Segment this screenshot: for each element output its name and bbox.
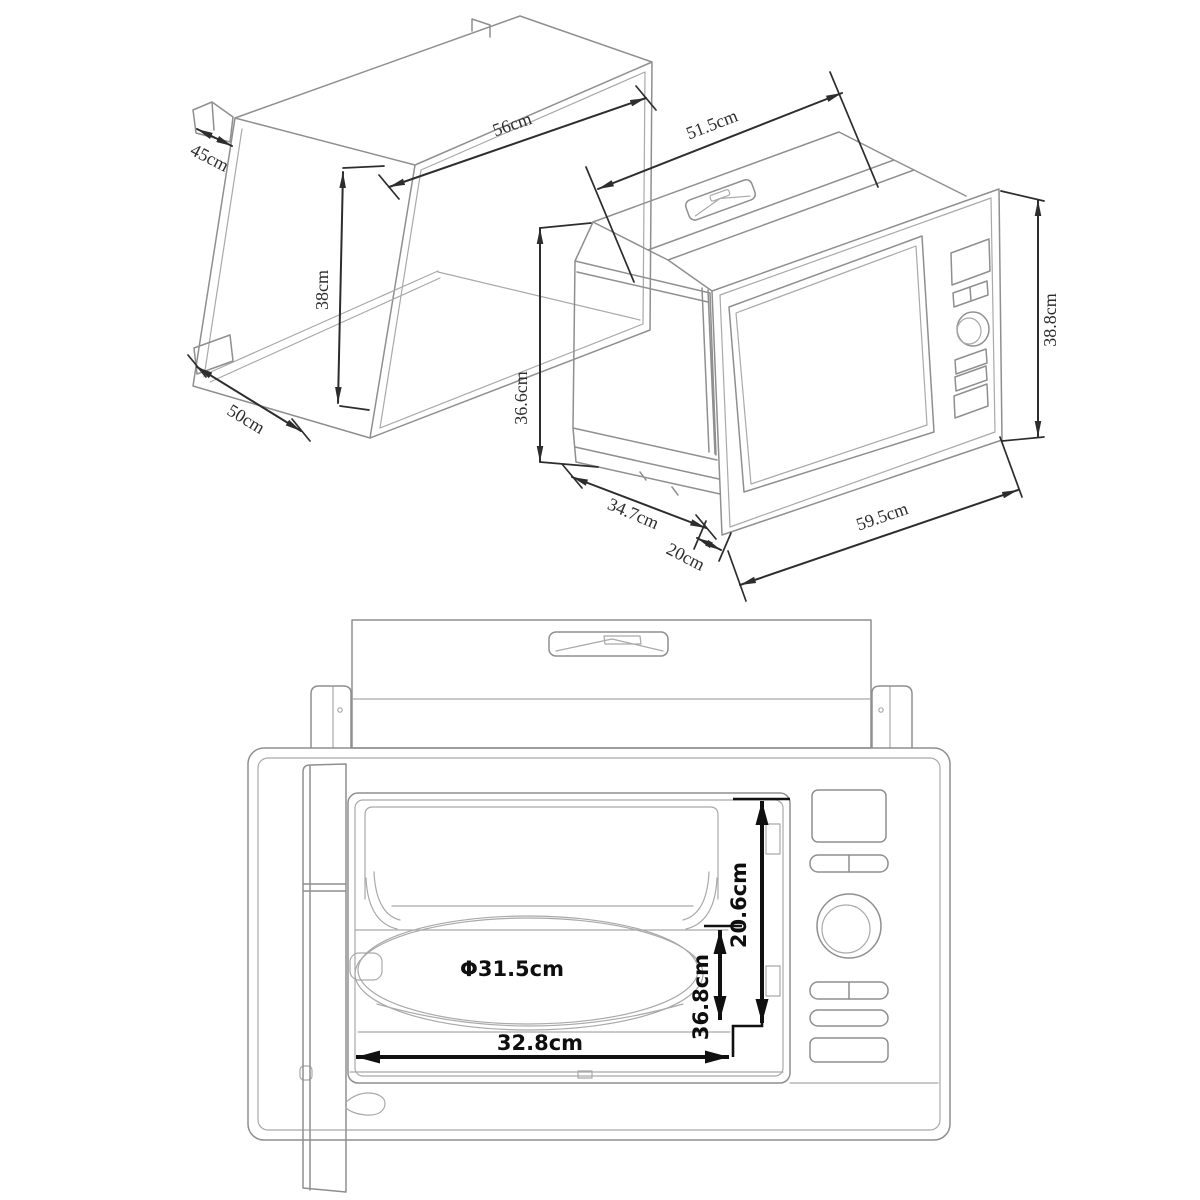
cabinet-isometric-view: 45cm 56cm 38cm 50cm <box>187 16 656 441</box>
microwave-isometric-view: 51.5cm 36.6cm 34.7cm 20cm 59.5cm 38.8cm <box>511 72 1060 601</box>
dim-label-cabinet-width: 56cm <box>490 108 534 140</box>
dim-microwave-clearance: 20cm <box>663 521 731 575</box>
button-row-2 <box>810 982 888 999</box>
button-row-1 <box>810 855 888 872</box>
dim-label-inner-height: 36.8cm <box>689 954 713 1040</box>
front-control-panel <box>810 790 888 1062</box>
dim-label-cavity-width: 32.8cm <box>497 1031 583 1055</box>
dim-label-microwave-frame-height: 38.8cm <box>1040 293 1060 347</box>
dim-cavity-width: 32.8cm <box>356 1031 729 1057</box>
control-knob-inner <box>822 905 870 953</box>
front-body-above-frame <box>311 620 912 748</box>
front-top-vent <box>549 632 668 656</box>
control-knob <box>817 894 881 958</box>
cabinet-outline <box>193 16 652 438</box>
oven-cavity <box>350 807 938 1083</box>
dim-label-cavity-height: 20.6cm <box>727 862 751 948</box>
dim-cabinet-top-depth: 45cm <box>187 129 232 176</box>
microwave-front-view: 20.6cm 36.8cm 32.8cm Φ31.5cm <box>248 620 950 1192</box>
cavity-corner-fillets <box>366 872 717 929</box>
dim-cabinet-bottom-depth: 50cm <box>188 355 310 441</box>
dim-cabinet-height: 38cm <box>312 166 384 410</box>
mounting-bracket-left <box>311 686 351 748</box>
mounting-bracket-right <box>872 686 912 748</box>
trim-frame-inner <box>258 758 940 1130</box>
door-panel <box>303 764 346 1192</box>
door-bottom-hinge <box>346 1093 385 1115</box>
door-latch-slots <box>766 824 780 996</box>
button-row-3 <box>810 1010 888 1026</box>
dim-label-turntable-diameter: Φ31.5cm <box>460 957 564 981</box>
dim-label-cabinet-height: 38cm <box>312 270 332 310</box>
dim-label-cabinet-top-depth: 45cm <box>187 140 232 176</box>
dim-label-microwave-clearance: 20cm <box>663 539 708 575</box>
button-row-4 <box>810 1038 888 1062</box>
display-screen <box>812 790 886 842</box>
open-door <box>300 764 385 1192</box>
installation-diagram: 45cm 56cm 38cm 50cm <box>0 0 1200 1200</box>
diagram-canvas: 45cm 56cm 38cm 50cm <box>0 0 1200 1200</box>
dim-label-microwave-height: 36.6cm <box>511 371 531 425</box>
dim-label-microwave-width: 51.5cm <box>683 105 740 143</box>
dim-microwave-frame-height: 38.8cm <box>1001 191 1060 441</box>
